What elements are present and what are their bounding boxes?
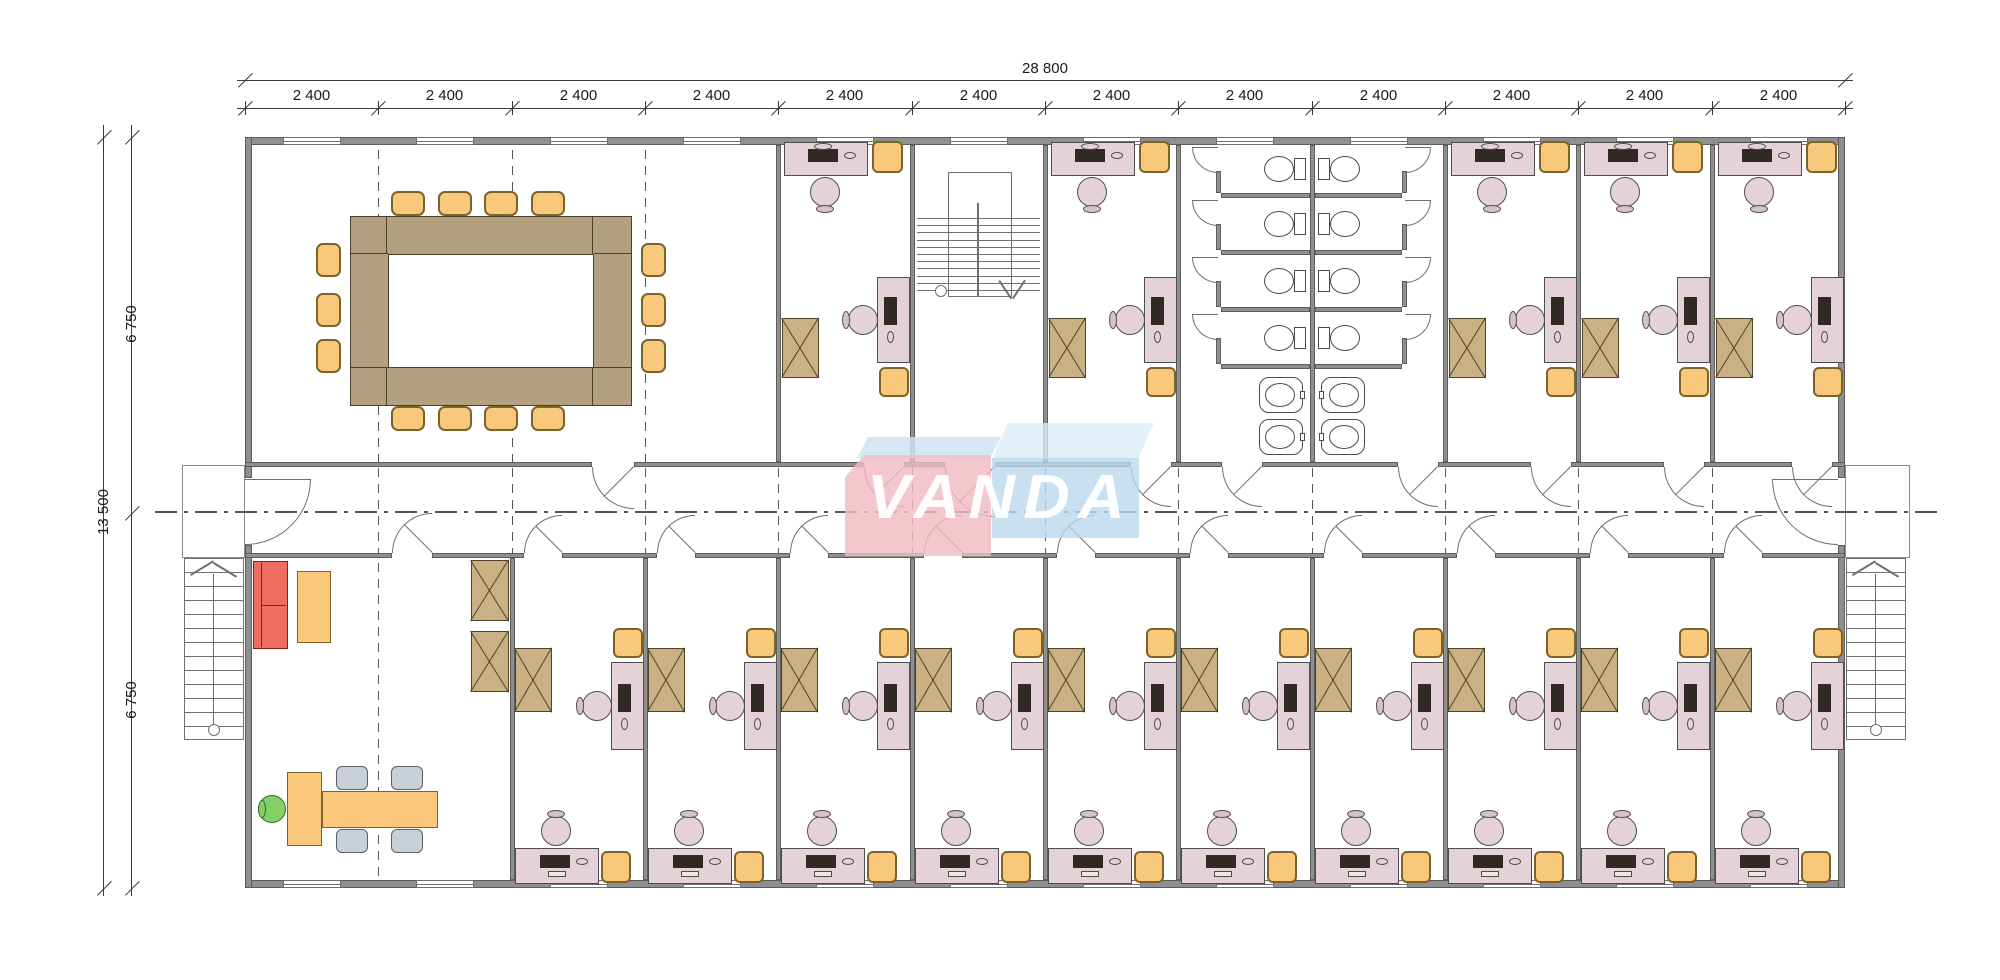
- office-top-1-armchair: [872, 141, 903, 173]
- office-bottom-9-monitor: [1684, 684, 1697, 712]
- office-bottom-6-keyboard: [1214, 871, 1232, 877]
- exterior-stair-right-newel: [1870, 724, 1882, 736]
- office-bottom-9-office-chair: [1607, 816, 1637, 846]
- reception-office-guest-chair: [391, 829, 423, 853]
- office-bottom-8-keyboard: [1481, 871, 1499, 877]
- exterior-stair-left-tread: [184, 642, 244, 643]
- washrooms-stall-door-arc: [1192, 200, 1218, 226]
- window-top: [950, 137, 1008, 145]
- conference-room-seat: [438, 406, 472, 431]
- conference-room-table-seam: [350, 253, 388, 254]
- office-top-4-mouse: [1687, 331, 1694, 343]
- office-bottom-1-armchair: [613, 628, 643, 658]
- partition-wall-bottom-band: [910, 558, 915, 880]
- office-top-2-office-chair-back: [1083, 205, 1101, 213]
- office-bottom-5-mouse: [1154, 718, 1161, 730]
- office-bottom-1-keyboard: [548, 871, 566, 877]
- dim-halves-line: [131, 125, 132, 896]
- office-bottom-9-armchair: [1667, 851, 1697, 883]
- office-top-4-armchair: [1672, 141, 1703, 173]
- office-bottom-3-mouse: [842, 858, 854, 865]
- office-bottom-8-office-chair: [1515, 691, 1545, 721]
- washrooms-toilet-bowl: [1264, 268, 1294, 294]
- conference-room-table-seam: [386, 368, 387, 406]
- office-bottom-3-monitor: [806, 855, 836, 868]
- office-bottom-7-monitor: [1340, 855, 1370, 868]
- office-bottom-4-armchair: [1001, 851, 1031, 883]
- office-top-1-monitor: [884, 297, 897, 325]
- window-top: [683, 137, 741, 145]
- office-top-5-desk-item: [1748, 143, 1766, 150]
- exterior-stair-right-tread: [1846, 628, 1906, 629]
- corridor-grid-line: [912, 468, 913, 557]
- office-bottom-10-office-chair-back: [1747, 810, 1765, 818]
- office-bottom-8-office-chair-back: [1509, 697, 1517, 715]
- office-top-3-monitor: [1475, 149, 1505, 162]
- washrooms-sink-tap: [1319, 433, 1324, 441]
- door-swing-arc: [945, 467, 995, 517]
- office-top-3-office-chair-back: [1483, 205, 1501, 213]
- exterior-stair-left-tread: [184, 698, 244, 699]
- exterior-stair-right-stringer: [1875, 574, 1876, 726]
- dim-bay-label: 2 400: [378, 88, 511, 104]
- conference-room-seat: [484, 406, 518, 431]
- washrooms-toilet-tank: [1294, 213, 1306, 235]
- office-top-4-monitor: [1684, 297, 1697, 325]
- washrooms-sink-basin: [1329, 383, 1359, 407]
- office-bottom-9-mouse: [1642, 858, 1654, 865]
- window-top: [550, 137, 608, 145]
- office-top-2-office-chair: [1115, 305, 1145, 335]
- office-bottom-4-monitor: [1018, 684, 1031, 712]
- conference-room-seat: [316, 243, 341, 277]
- office-bottom-2-office-chair: [715, 691, 745, 721]
- office-bottom-4-mouse: [1021, 718, 1028, 730]
- exterior-wall-left: [245, 545, 252, 888]
- partition-wall-top-band: [1443, 145, 1448, 462]
- washrooms-toilet-bowl: [1330, 268, 1360, 294]
- corridor-grid-line: [1712, 468, 1713, 557]
- corridor-grid-line: [1445, 468, 1446, 557]
- office-top-2-armchair: [1146, 367, 1176, 397]
- dim-bay-label: 2 400: [1312, 88, 1445, 104]
- office-top-5-mouse: [1821, 331, 1828, 343]
- reception-office-guest-chair: [336, 829, 368, 853]
- dim-tick: [125, 881, 140, 896]
- exterior-stair-right-tread: [1846, 656, 1906, 657]
- washrooms-stall-front: [1216, 224, 1221, 250]
- window-top: [416, 137, 474, 145]
- corridor-wall-top: [245, 462, 592, 467]
- corridor-wall-top: [1571, 462, 1664, 467]
- office-bottom-7-office-chair-back: [1347, 810, 1365, 818]
- exterior-stair-left-tread: [184, 600, 244, 601]
- office-bottom-5-office-chair-back: [1080, 810, 1098, 818]
- office-top-5-monitor: [1818, 297, 1831, 325]
- office-bottom-2-office-chair-back: [680, 810, 698, 818]
- office-bottom-3-armchair: [867, 851, 897, 883]
- office-top-4-armchair: [1679, 367, 1709, 397]
- office-top-1-mouse: [887, 331, 894, 343]
- door-swing-arc: [1664, 467, 1704, 507]
- office-top-3-office-chair: [1477, 177, 1507, 207]
- washrooms-toilet-tank: [1318, 213, 1330, 235]
- washrooms-sink-basin: [1329, 425, 1359, 449]
- office-bottom-2-armchair: [746, 628, 776, 658]
- corridor-wall-top: [1438, 462, 1531, 467]
- office-bottom-7-mouse: [1421, 718, 1428, 730]
- dim-bay-label: 2 400: [912, 88, 1045, 104]
- office-top-5-monitor: [1742, 149, 1772, 162]
- washrooms-toilet-bowl: [1330, 156, 1360, 182]
- stairwell-landing: [948, 172, 1012, 297]
- office-bottom-7-armchair: [1401, 851, 1431, 883]
- partition-wall-bottom-band: [510, 558, 515, 880]
- office-bottom-10-office-chair-back: [1776, 697, 1784, 715]
- washrooms-stall-door-arc: [1405, 257, 1431, 283]
- reception-office-manager-chair-back: [258, 800, 266, 818]
- office-bottom-6-office-chair: [1207, 816, 1237, 846]
- office-bottom-3-office-chair: [848, 691, 878, 721]
- office-bottom-4-office-chair: [941, 816, 971, 846]
- office-bottom-6-mouse: [1287, 718, 1294, 730]
- corridor-grid-line: [1178, 468, 1179, 557]
- conference-room-table-seam: [350, 367, 388, 368]
- office-top-1-office-chair: [810, 177, 840, 207]
- corridor-wall-bottom: [1762, 553, 1845, 558]
- office-bottom-5-armchair: [1146, 628, 1176, 658]
- door-swing-arc: [864, 467, 904, 507]
- office-bottom-2-monitor: [751, 684, 764, 712]
- office-top-1-desk-item: [814, 143, 832, 150]
- office-top-3-desk-item: [1481, 143, 1499, 150]
- exterior-stair-left-tread: [184, 614, 244, 615]
- conference-room-seat: [531, 191, 565, 216]
- office-bottom-1-monitor: [618, 684, 631, 712]
- washrooms-stall-front: [1216, 338, 1221, 364]
- dim-bay-label: 2 400: [1045, 88, 1178, 104]
- door-swing-arc: [1531, 467, 1571, 507]
- office-bottom-3-monitor: [884, 684, 897, 712]
- logo-box-pink-top: [857, 437, 1001, 458]
- office-bottom-4-monitor: [940, 855, 970, 868]
- conference-room-seat: [391, 191, 425, 216]
- office-bottom-9-monitor: [1606, 855, 1636, 868]
- washrooms-stall-door-arc: [1405, 200, 1431, 226]
- office-top-2-monitor: [1151, 297, 1164, 325]
- conference-room-seat: [316, 339, 341, 373]
- washrooms-stall-front: [1402, 338, 1407, 364]
- office-bottom-8-monitor: [1551, 684, 1564, 712]
- office-bottom-8-monitor: [1473, 855, 1503, 868]
- dim-tick: [125, 506, 140, 521]
- partition-wall-top-band: [1710, 145, 1715, 462]
- partition-wall-bottom-band: [1310, 558, 1315, 880]
- office-bottom-10-monitor: [1818, 684, 1831, 712]
- dim-tick: [125, 130, 140, 145]
- washrooms-stall-partition: [1221, 193, 1310, 198]
- washrooms-sink-basin: [1265, 425, 1295, 449]
- office-top-4-office-chair: [1610, 177, 1640, 207]
- washrooms-stall-partition: [1221, 307, 1310, 312]
- office-bottom-8-armchair: [1546, 628, 1576, 658]
- washrooms-stall-door-arc: [1405, 314, 1431, 340]
- corridor-grid-line: [1045, 468, 1046, 557]
- dim-bay-label: 2 400: [1178, 88, 1311, 104]
- office-top-3-armchair: [1539, 141, 1570, 173]
- office-top-2-desk-item: [1081, 143, 1099, 150]
- conference-room-seat: [484, 191, 518, 216]
- office-bottom-9-armchair: [1679, 628, 1709, 658]
- washrooms-toilet-tank: [1294, 270, 1306, 292]
- office-bottom-6-armchair: [1279, 628, 1309, 658]
- door-swing-arc: [1222, 467, 1262, 507]
- office-bottom-2-armchair: [734, 851, 764, 883]
- office-bottom-1-office-chair-back: [576, 697, 584, 715]
- office-bottom-6-monitor: [1284, 684, 1297, 712]
- office-bottom-1-armchair: [601, 851, 631, 883]
- office-bottom-2-office-chair: [674, 816, 704, 846]
- dim-bay-label: 2 400: [245, 88, 378, 104]
- office-top-1-office-chair-back: [842, 311, 850, 329]
- office-top-3-office-chair: [1515, 305, 1545, 335]
- office-bottom-10-mouse: [1776, 858, 1788, 865]
- office-top-4-monitor: [1608, 149, 1638, 162]
- washrooms-stall-front: [1216, 281, 1221, 307]
- dim-half-height-label: 6 750: [124, 650, 140, 750]
- washrooms-sink-tap: [1300, 433, 1305, 441]
- office-top-3-mouse: [1511, 152, 1523, 159]
- office-bottom-6-office-chair-back: [1242, 697, 1250, 715]
- washrooms-toilet-bowl: [1264, 211, 1294, 237]
- conference-room-table-seam: [594, 367, 632, 368]
- office-bottom-5-monitor: [1151, 684, 1164, 712]
- office-top-5-mouse: [1778, 152, 1790, 159]
- partition-wall-top-band: [1043, 145, 1048, 462]
- corridor-grid-line: [378, 468, 379, 557]
- reception-office-guest-chair: [336, 766, 368, 790]
- office-bottom-1-monitor: [540, 855, 570, 868]
- office-top-5-office-chair: [1782, 305, 1812, 335]
- conference-room-seat: [391, 406, 425, 431]
- dim-tick: [97, 881, 112, 896]
- office-top-4-office-chair-back: [1642, 311, 1650, 329]
- office-bottom-9-keyboard: [1614, 871, 1632, 877]
- exterior-stair-right-tread: [1846, 614, 1906, 615]
- office-top-2-armchair: [1139, 141, 1170, 173]
- office-top-5-armchair: [1806, 141, 1837, 173]
- exterior-stair-left-tread: [184, 656, 244, 657]
- office-top-3-office-chair-back: [1509, 311, 1517, 329]
- office-bottom-7-office-chair: [1382, 691, 1412, 721]
- office-bottom-1-office-chair-back: [547, 810, 565, 818]
- dim-bay-label: 2 400: [778, 88, 911, 104]
- office-bottom-5-monitor: [1073, 855, 1103, 868]
- washrooms-sink-basin: [1265, 383, 1295, 407]
- office-bottom-9-mouse: [1687, 718, 1694, 730]
- conference-room-seat: [316, 293, 341, 327]
- office-bottom-7-monitor: [1418, 684, 1431, 712]
- corridor-grid-line: [778, 468, 779, 557]
- reception-office-coffee-table: [297, 571, 331, 643]
- logo-box-blue-front: [992, 458, 1139, 538]
- exterior-stair-right-tread: [1846, 712, 1906, 713]
- dim-bay-label: 2 400: [645, 88, 778, 104]
- corridor-centerline: [155, 511, 1940, 513]
- office-bottom-7-office-chair-back: [1376, 697, 1384, 715]
- washrooms-stall-front: [1402, 171, 1407, 193]
- office-bottom-5-armchair: [1134, 851, 1164, 883]
- conference-room-seat: [641, 339, 666, 373]
- floor-plan-canvas: VANDA 28 8002 4002 4002 4002 4002 4002 4…: [0, 0, 2000, 980]
- office-bottom-5-keyboard: [1081, 871, 1099, 877]
- office-top-1-office-chair: [848, 305, 878, 335]
- stairwell-newel: [935, 285, 947, 297]
- corridor-wall-bottom: [245, 553, 392, 558]
- office-bottom-8-mouse: [1554, 718, 1561, 730]
- washrooms-toilet-bowl: [1264, 325, 1294, 351]
- office-bottom-2-office-chair-back: [709, 697, 717, 715]
- office-bottom-10-office-chair: [1741, 816, 1771, 846]
- conference-room-seat: [641, 293, 666, 327]
- dim-half-height-label: 6 750: [124, 274, 140, 374]
- dim-bay-label: 2 400: [1578, 88, 1711, 104]
- office-top-2-mouse: [1154, 331, 1161, 343]
- exterior-wall-left: [245, 137, 252, 478]
- washrooms-stall-door-arc: [1192, 314, 1218, 340]
- door-swing-arc: [1398, 467, 1438, 507]
- office-bottom-3-office-chair-back: [842, 697, 850, 715]
- corridor-grid-line: [512, 468, 513, 557]
- washrooms-sink-tap: [1300, 391, 1305, 399]
- exterior-stair-left-tread: [184, 586, 244, 587]
- office-top-4-office-chair-back: [1616, 205, 1634, 213]
- office-bottom-10-armchair: [1813, 628, 1843, 658]
- conference-room-seat: [641, 243, 666, 277]
- washrooms-toilet-tank: [1318, 158, 1330, 180]
- office-bottom-3-armchair: [879, 628, 909, 658]
- office-bottom-5-mouse: [1109, 858, 1121, 865]
- dim-total-width-line: [237, 80, 1853, 81]
- office-top-1-monitor: [808, 149, 838, 162]
- washrooms-stall-door-arc: [1405, 147, 1431, 173]
- office-top-1-mouse: [844, 152, 856, 159]
- washrooms-toilet-tank: [1318, 270, 1330, 292]
- conference-room-seat: [531, 406, 565, 431]
- washrooms-stall-door-arc: [1192, 147, 1218, 173]
- exterior-stair-right-tread: [1846, 600, 1906, 601]
- washrooms-toilet-tank: [1294, 158, 1306, 180]
- exterior-stair-right-tread: [1846, 642, 1906, 643]
- office-bottom-3-office-chair-back: [813, 810, 831, 818]
- office-bottom-10-mouse: [1821, 718, 1828, 730]
- washrooms-stall-front: [1216, 171, 1221, 193]
- office-bottom-10-office-chair: [1782, 691, 1812, 721]
- window-bottom: [416, 880, 474, 888]
- window-top: [1216, 137, 1274, 145]
- reception-office-sofa-seam: [262, 605, 286, 606]
- office-top-5-office-chair: [1744, 177, 1774, 207]
- corridor-wall-top: [634, 462, 864, 467]
- office-top-2-monitor: [1075, 149, 1105, 162]
- office-bottom-3-mouse: [887, 718, 894, 730]
- office-bottom-9-office-chair: [1648, 691, 1678, 721]
- office-bottom-9-office-chair-back: [1613, 810, 1631, 818]
- logo-box-blue-top: [992, 423, 1154, 459]
- office-bottom-4-office-chair-back: [947, 810, 965, 818]
- corridor-wall-top: [1171, 462, 1222, 467]
- conference-room-table-seam: [592, 368, 593, 406]
- office-bottom-10-armchair: [1801, 851, 1831, 883]
- conference-room-table-seam: [592, 216, 593, 254]
- corridor-wall-top: [1704, 462, 1792, 467]
- office-bottom-2-mouse: [709, 858, 721, 865]
- conference-room-table-seam: [386, 216, 387, 254]
- corridor-grid-line: [1578, 468, 1579, 557]
- washrooms-stall-front: [1402, 224, 1407, 250]
- office-bottom-4-office-chair: [982, 691, 1012, 721]
- office-bottom-6-monitor: [1206, 855, 1236, 868]
- office-bottom-5-office-chair: [1074, 816, 1104, 846]
- exterior-stair-right-tread: [1846, 698, 1906, 699]
- corridor-wall-top: [1832, 462, 1845, 467]
- washrooms-toilet-tank: [1294, 327, 1306, 349]
- washrooms-toilet-bowl: [1330, 211, 1360, 237]
- dim-bay-label: 2 400: [512, 88, 645, 104]
- washrooms-toilet-bowl: [1330, 325, 1360, 351]
- office-bottom-7-mouse: [1376, 858, 1388, 865]
- office-top-3-mouse: [1554, 331, 1561, 343]
- washrooms-sink-tap: [1319, 391, 1324, 399]
- washrooms-stall-partition: [1221, 364, 1310, 369]
- office-bottom-4-office-chair-back: [976, 697, 984, 715]
- office-bottom-6-office-chair-back: [1213, 810, 1231, 818]
- window-top: [1350, 137, 1408, 145]
- window-top: [283, 137, 341, 145]
- window-bottom: [283, 880, 341, 888]
- washrooms-stall-partition: [1315, 250, 1402, 255]
- office-bottom-1-mouse: [576, 858, 588, 865]
- office-top-5-office-chair-back: [1750, 205, 1768, 213]
- office-bottom-10-keyboard: [1748, 871, 1766, 877]
- office-top-1-armchair: [879, 367, 909, 397]
- partition-wall-bottom-band: [1710, 558, 1715, 880]
- exterior-stair-left-tread: [184, 670, 244, 671]
- office-bottom-8-office-chair: [1474, 816, 1504, 846]
- office-top-2-office-chair: [1077, 177, 1107, 207]
- dim-bay-label: 2 400: [1445, 88, 1578, 104]
- door-swing-arc: [1131, 467, 1171, 507]
- corridor-grid-line: [1312, 468, 1313, 557]
- exterior-stair-left-tread: [184, 628, 244, 629]
- office-bottom-9-office-chair-back: [1642, 697, 1650, 715]
- partition-wall-top-band: [910, 145, 915, 462]
- office-bottom-8-office-chair-back: [1480, 810, 1498, 818]
- office-top-2-office-chair-back: [1109, 311, 1117, 329]
- office-bottom-7-keyboard: [1348, 871, 1366, 877]
- office-top-4-office-chair: [1648, 305, 1678, 335]
- washrooms-stall-partition: [1221, 250, 1310, 255]
- dim-total-height-label: 13 500: [96, 462, 112, 562]
- exterior-stair-left-newel: [208, 724, 220, 736]
- office-bottom-3-office-chair: [807, 816, 837, 846]
- office-bottom-5-office-chair: [1115, 691, 1145, 721]
- washrooms-stall-front: [1402, 281, 1407, 307]
- exterior-stair-left-stringer: [213, 574, 214, 726]
- office-top-4-desk-item: [1614, 143, 1632, 150]
- washrooms-stall-partition: [1315, 307, 1402, 312]
- exterior-stair-left-tread: [184, 684, 244, 685]
